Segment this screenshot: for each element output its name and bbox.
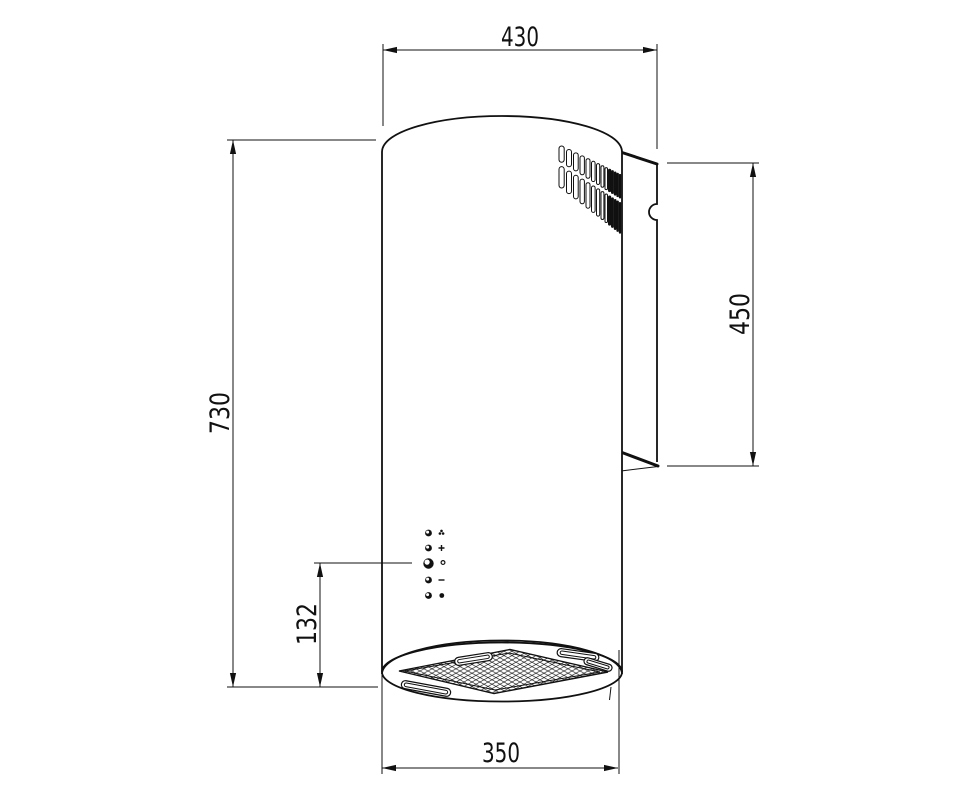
grille-slot (614, 199, 616, 229)
grille-slot (574, 153, 579, 171)
grille-slot (586, 183, 590, 209)
dimension-label-132: 132 (292, 603, 323, 645)
bracket-face (622, 153, 657, 462)
dimension-label-730: 730 (205, 392, 236, 434)
grille-slot (619, 174, 620, 198)
grille-slot (592, 161, 596, 181)
grille-slot (612, 198, 614, 228)
grille-slot (609, 196, 611, 225)
mounting-bracket (621, 153, 658, 472)
grille-slot (567, 150, 572, 167)
technical-drawing-canvas: 430 730 450 132 350 (0, 0, 977, 799)
bracket-bottom-fold (621, 467, 658, 472)
grille-slot (559, 167, 564, 188)
grille-slot (617, 201, 619, 231)
grille-slot (580, 179, 584, 204)
grille-slot (574, 175, 579, 199)
grille-slot (605, 194, 608, 223)
grille-slot (612, 171, 614, 194)
dimension-label-430: 430 (501, 22, 539, 53)
grille-slot (586, 159, 590, 179)
rim-seam (610, 687, 612, 700)
grille-slot (601, 192, 604, 220)
grille-slot (597, 189, 600, 216)
grille-slot (609, 169, 611, 191)
grille-slot (580, 156, 584, 175)
dimension-label-350: 350 (482, 738, 520, 769)
hood-drawing: 430 730 450 132 350 (0, 0, 977, 799)
grille-slot (597, 164, 600, 185)
grille-slot (567, 171, 572, 193)
dimension-label-450: 450 (725, 293, 756, 335)
grille-slot (601, 166, 604, 187)
light-icon (439, 593, 444, 598)
bottom-face (382, 640, 622, 701)
grille-slot (592, 186, 596, 212)
grille-slot (617, 173, 619, 196)
grille-slot (614, 172, 616, 195)
dimension-450: 450 (667, 163, 759, 466)
grille-slot (619, 202, 620, 233)
grille-slot (559, 146, 564, 162)
grille-slot (605, 168, 608, 190)
